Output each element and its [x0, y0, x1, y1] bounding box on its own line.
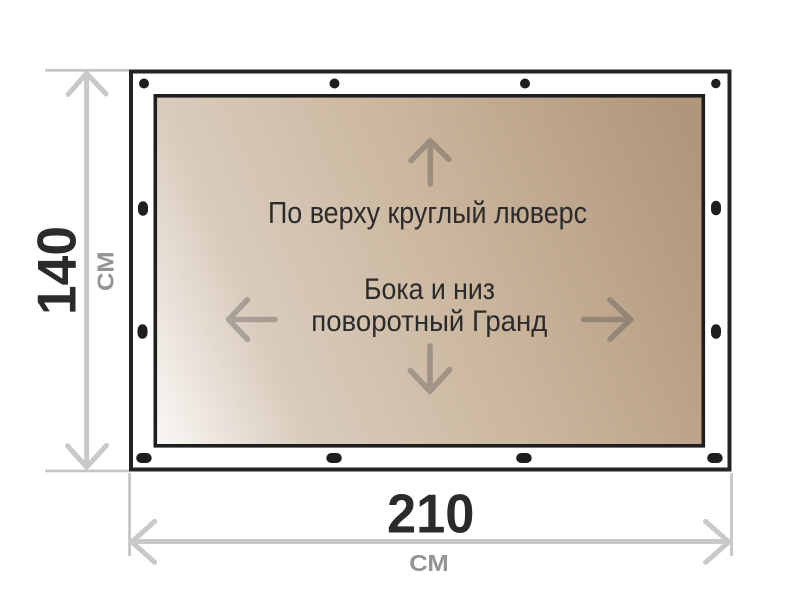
svg-text:СМ: СМ — [409, 550, 449, 576]
svg-text:210: 210 — [387, 483, 475, 545]
svg-text:По верху круглый люверс: По верху круглый люверс — [268, 196, 587, 230]
svg-text:Бока и низ: Бока и низ — [364, 273, 495, 306]
svg-text:СМ: СМ — [93, 251, 119, 291]
svg-text:140: 140 — [26, 226, 88, 315]
svg-text:поворотный Гранд: поворотный Гранд — [311, 305, 547, 338]
